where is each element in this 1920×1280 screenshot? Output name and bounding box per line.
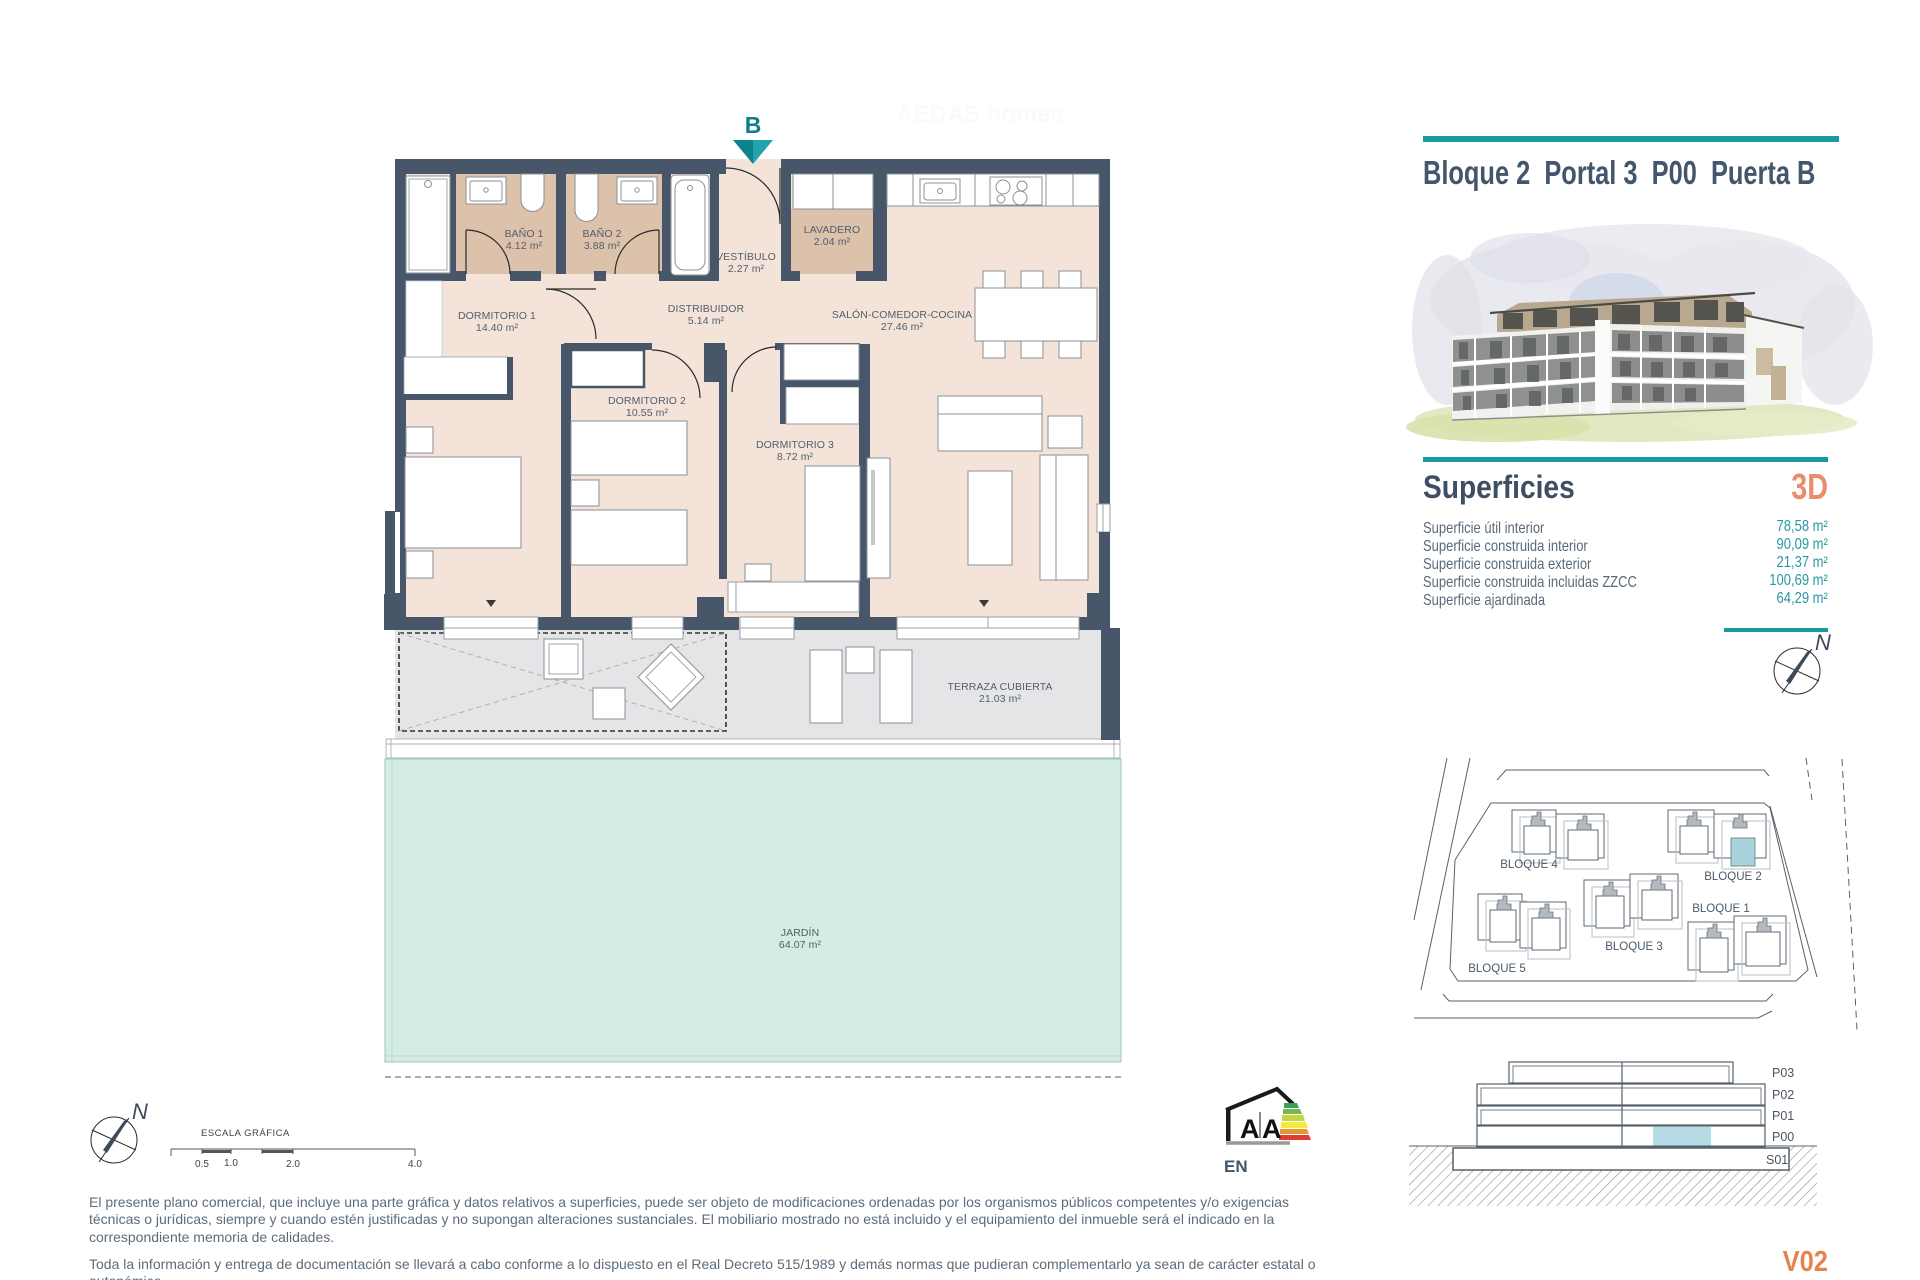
svg-text:P01: P01 [1772, 1109, 1794, 1123]
svg-text:DISTRIBUIDOR: DISTRIBUIDOR [668, 303, 745, 315]
svg-text:Superficie ajardinada: Superficie ajardinada [1423, 592, 1545, 609]
svg-text:VESTÍBULO: VESTÍBULO [716, 250, 776, 263]
svg-text:ESCALA GRÁFICA: ESCALA GRÁFICA [201, 1128, 290, 1139]
svg-text:TERRAZA CUBIERTA: TERRAZA CUBIERTA [947, 681, 1052, 693]
svg-text:3D: 3D [1791, 466, 1828, 507]
svg-text:LAVADERO: LAVADERO [804, 224, 860, 236]
svg-text:Superficie construida interior: Superficie construida interior [1423, 538, 1588, 555]
svg-text:P00: P00 [1772, 1130, 1794, 1144]
svg-text:78,58 m²: 78,58 m² [1777, 518, 1829, 535]
svg-text:DORMITORIO 2: DORMITORIO 2 [608, 395, 686, 407]
svg-text:BAÑO 2: BAÑO 2 [582, 227, 621, 240]
svg-text:4.0: 4.0 [408, 1159, 422, 1170]
svg-text:Superficies: Superficies [1423, 470, 1575, 505]
svg-text:Superficie útil interior: Superficie útil interior [1423, 520, 1545, 537]
svg-text:1.0: 1.0 [224, 1158, 238, 1169]
svg-text:27.46 m²: 27.46 m² [881, 321, 924, 333]
svg-text:A: A [1262, 1114, 1282, 1144]
svg-text:EN: EN [1224, 1157, 1248, 1176]
svg-text:Bloque 2 Portal 3 P00 Puert: Bloque 2 Portal 3 P00 Puerta B [1423, 155, 1815, 192]
svg-text:5.14 m²: 5.14 m² [688, 315, 725, 327]
svg-text:3.88 m²: 3.88 m² [584, 240, 621, 252]
svg-text:21,37 m²: 21,37 m² [1777, 554, 1829, 571]
svg-text:2.04 m²: 2.04 m² [814, 236, 851, 248]
svg-text:V02: V02 [1783, 1244, 1828, 1277]
svg-text:JARDÍN: JARDÍN [781, 926, 820, 939]
svg-text:2.27 m²: 2.27 m² [728, 263, 765, 275]
svg-text:4.12 m²: 4.12 m² [506, 240, 543, 252]
svg-text:DORMITORIO 1: DORMITORIO 1 [458, 310, 536, 322]
svg-text:21.03 m²: 21.03 m² [979, 693, 1022, 705]
svg-text:8.72 m²: 8.72 m² [777, 451, 814, 463]
svg-text:14.40 m²: 14.40 m² [476, 322, 519, 334]
svg-text:P03: P03 [1772, 1066, 1794, 1080]
svg-text:S01: S01 [1766, 1153, 1788, 1167]
svg-text:P02: P02 [1772, 1088, 1794, 1102]
svg-text:2.0: 2.0 [286, 1159, 300, 1170]
svg-text:DORMITORIO 3: DORMITORIO 3 [756, 439, 834, 451]
svg-text:BAÑO 1: BAÑO 1 [504, 227, 543, 240]
svg-text:N: N [132, 1099, 148, 1124]
svg-text:64.07 m²: 64.07 m² [779, 939, 822, 951]
svg-text:AEDAS homes: AEDAS homes [896, 101, 1064, 128]
svg-text:BLOQUE 3: BLOQUE 3 [1605, 941, 1663, 953]
svg-text:A: A [1240, 1114, 1260, 1144]
svg-text:BLOQUE 5: BLOQUE 5 [1468, 963, 1526, 975]
svg-text:BLOQUE 1: BLOQUE 1 [1692, 903, 1750, 915]
svg-text:BLOQUE 4: BLOQUE 4 [1500, 859, 1558, 871]
svg-text:BLOQUE 2: BLOQUE 2 [1704, 871, 1762, 883]
svg-text:10.55 m²: 10.55 m² [626, 407, 669, 419]
svg-text:64,29 m²: 64,29 m² [1777, 590, 1829, 607]
svg-text:Superficie construida exterior: Superficie construida exterior [1423, 556, 1592, 573]
svg-text:100,69 m²: 100,69 m² [1769, 572, 1828, 589]
svg-text:90,09 m²: 90,09 m² [1777, 536, 1829, 553]
svg-text:B: B [745, 112, 762, 138]
svg-text:0.5: 0.5 [195, 1159, 209, 1170]
svg-text:Superficie construida incluida: Superficie construida incluidas ZZCC [1423, 574, 1637, 591]
svg-text:SALÓN-COMEDOR-COCINA: SALÓN-COMEDOR-COCINA [832, 308, 972, 321]
svg-text:N: N [1815, 630, 1831, 655]
